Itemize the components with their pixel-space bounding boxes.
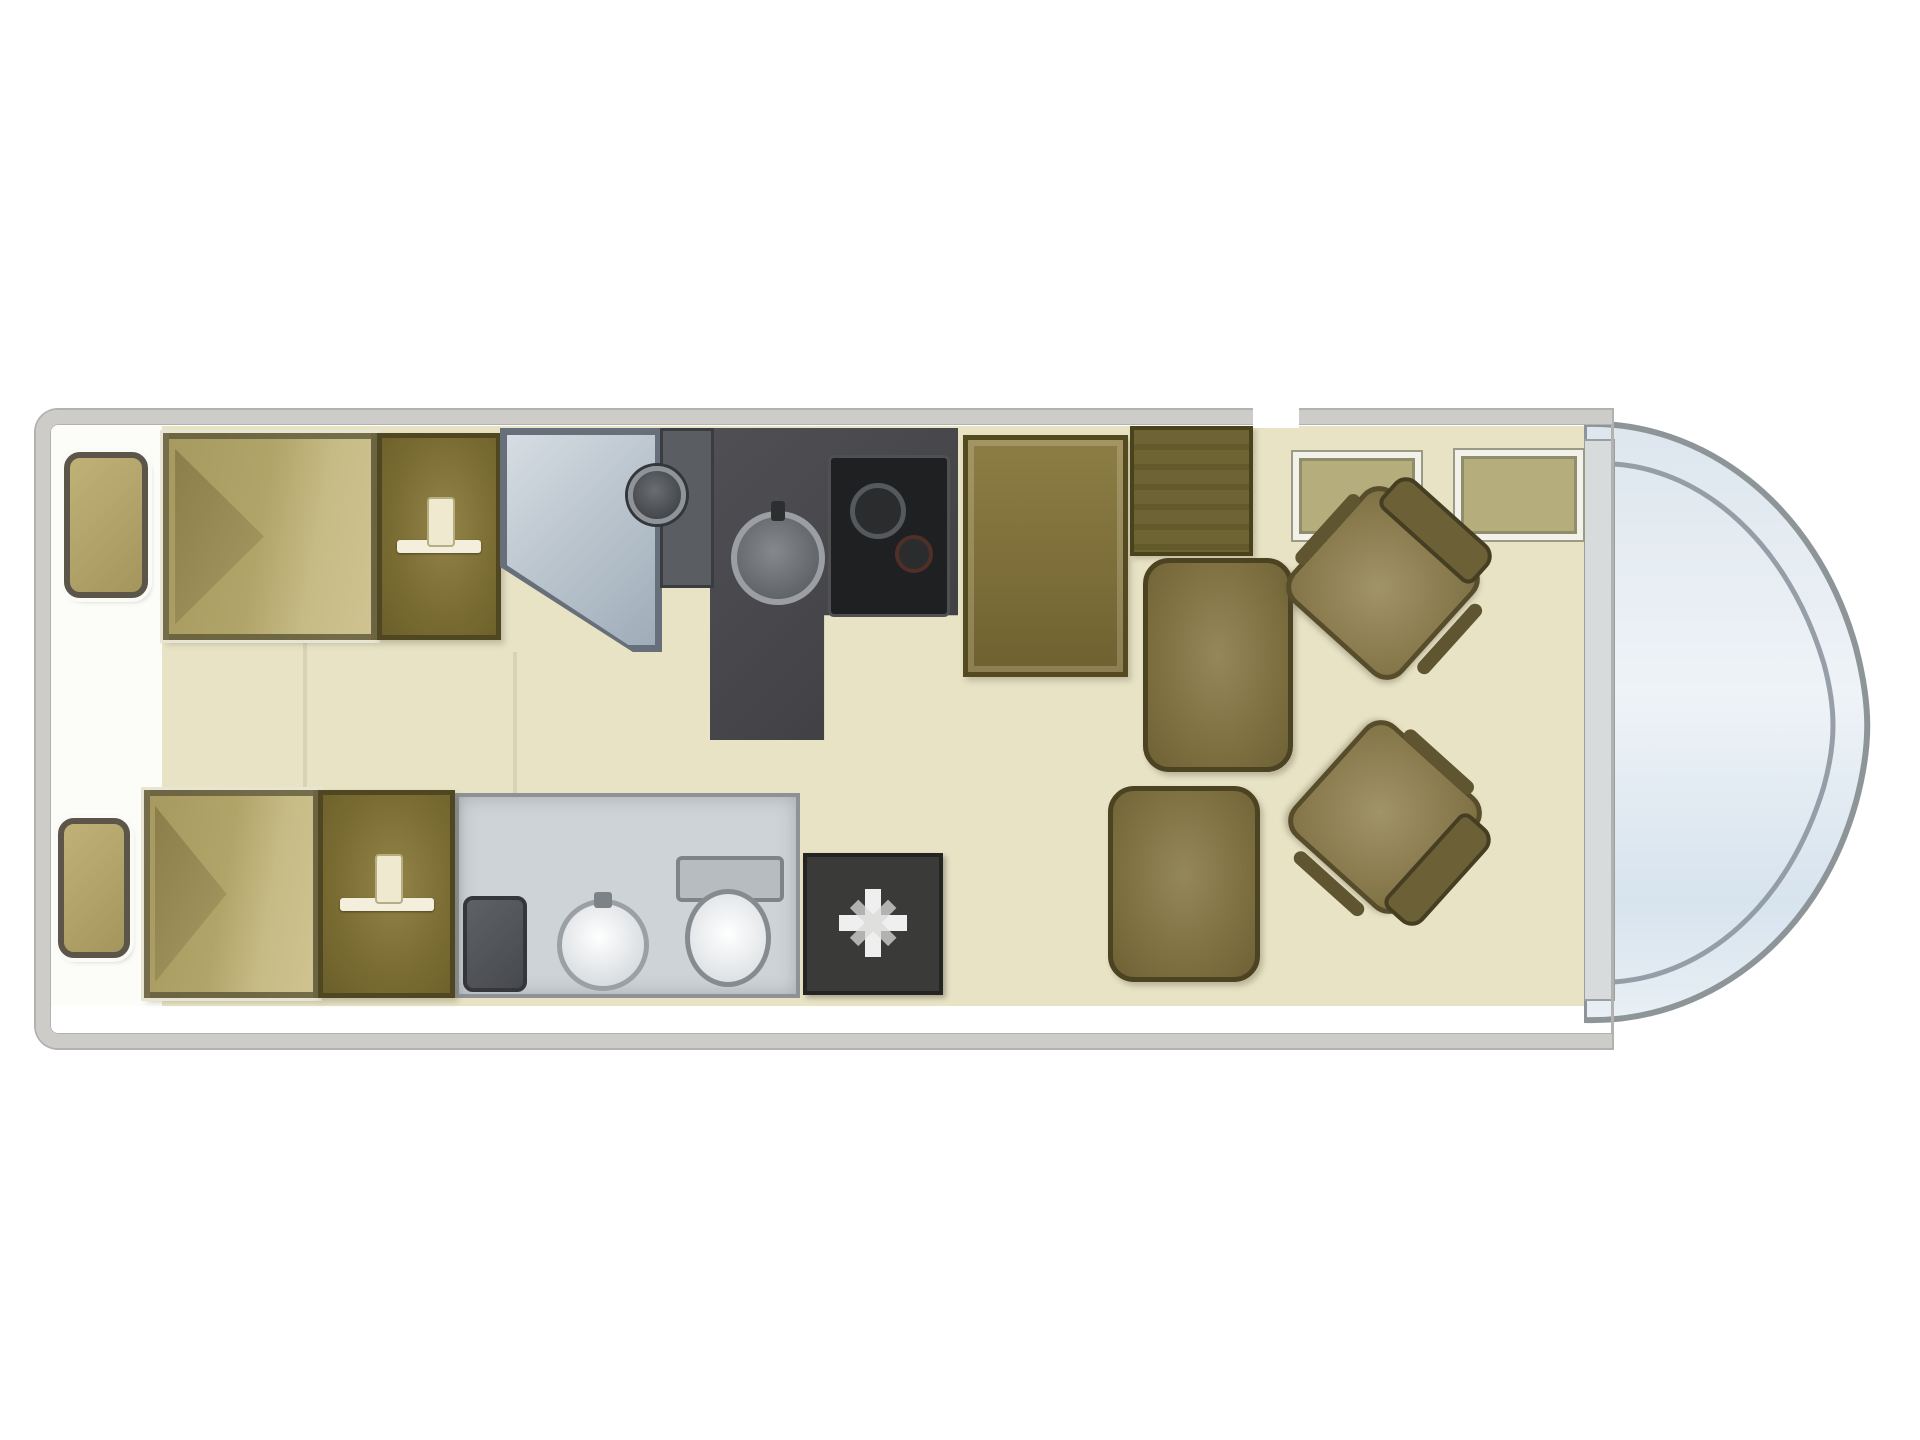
wardrobe-top [377, 433, 501, 640]
cab-windshield [1584, 404, 1884, 1029]
entrance-door-gap [1253, 404, 1299, 428]
wardrobe-bottom [318, 790, 455, 998]
motorhome-floorplan [0, 0, 1920, 1440]
fridge-tall-cabinet [963, 435, 1128, 677]
lounge-seat-rear [1108, 786, 1260, 982]
heater-unit [803, 853, 943, 995]
toilet [676, 856, 784, 992]
corridor-divider-1 [303, 642, 307, 790]
lounge-seat-front [1143, 558, 1293, 772]
front-shelf-right [1455, 450, 1583, 540]
kitchen-sink [731, 511, 825, 605]
dashboard-band [1584, 440, 1614, 1000]
kitchen-hob [828, 455, 950, 617]
side-cabinet [1130, 426, 1253, 556]
heater-fan-icon [839, 889, 907, 957]
nightstand-rear-top [64, 452, 148, 598]
washroom-basin [557, 899, 649, 991]
single-bed-bottom [144, 790, 319, 998]
corner-washbasin [628, 466, 686, 524]
nightstand-rear-bottom [58, 818, 130, 958]
washroom-utility-box [463, 896, 527, 992]
single-bed-top [163, 433, 377, 640]
corridor-divider-2 [513, 652, 517, 793]
nose-body-outline [1584, 424, 1867, 1020]
